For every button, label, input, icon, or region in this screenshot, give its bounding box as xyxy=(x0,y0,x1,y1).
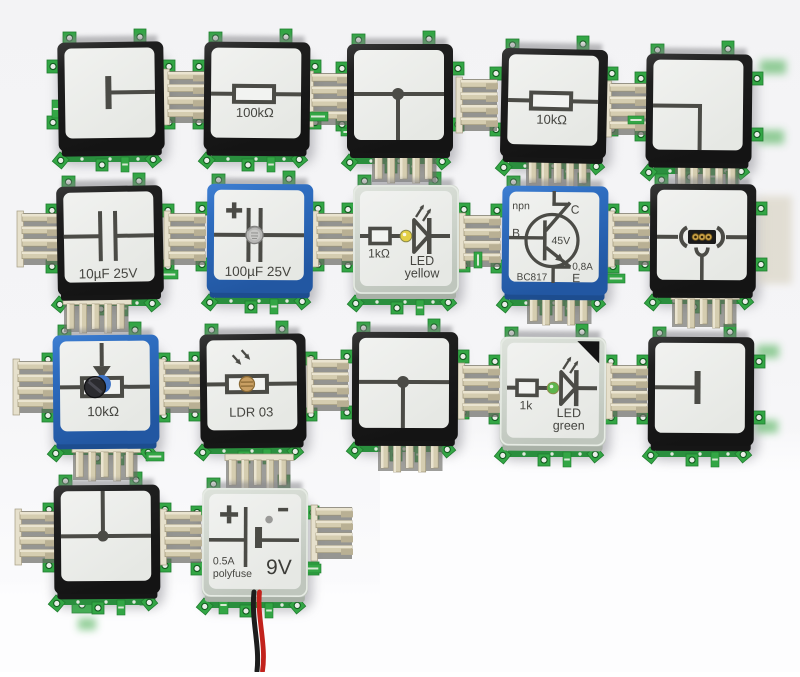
svg-text:yellow: yellow xyxy=(405,267,441,281)
svg-text:npn: npn xyxy=(512,200,530,212)
svg-text:BC817: BC817 xyxy=(517,272,548,283)
svg-text:100µF 25V: 100µF 25V xyxy=(225,264,291,279)
svg-text:B: B xyxy=(512,226,520,240)
svg-text:100kΩ: 100kΩ xyxy=(236,105,274,120)
svg-text:green: green xyxy=(553,418,585,432)
svg-text:0.5A: 0.5A xyxy=(213,555,235,567)
svg-text:9V: 9V xyxy=(266,556,292,579)
svg-text:E: E xyxy=(572,271,580,285)
svg-text:45V: 45V xyxy=(551,235,570,247)
svg-text:10kΩ: 10kΩ xyxy=(536,112,567,128)
svg-text:LDR 03: LDR 03 xyxy=(229,404,273,419)
svg-text:10µF 25V: 10µF 25V xyxy=(79,266,138,282)
svg-text:10kΩ: 10kΩ xyxy=(87,404,119,419)
svg-text:polyfuse: polyfuse xyxy=(213,568,252,580)
svg-text:1kΩ: 1kΩ xyxy=(368,247,390,261)
svg-text:1k: 1k xyxy=(520,398,534,412)
svg-text:C: C xyxy=(571,203,580,217)
